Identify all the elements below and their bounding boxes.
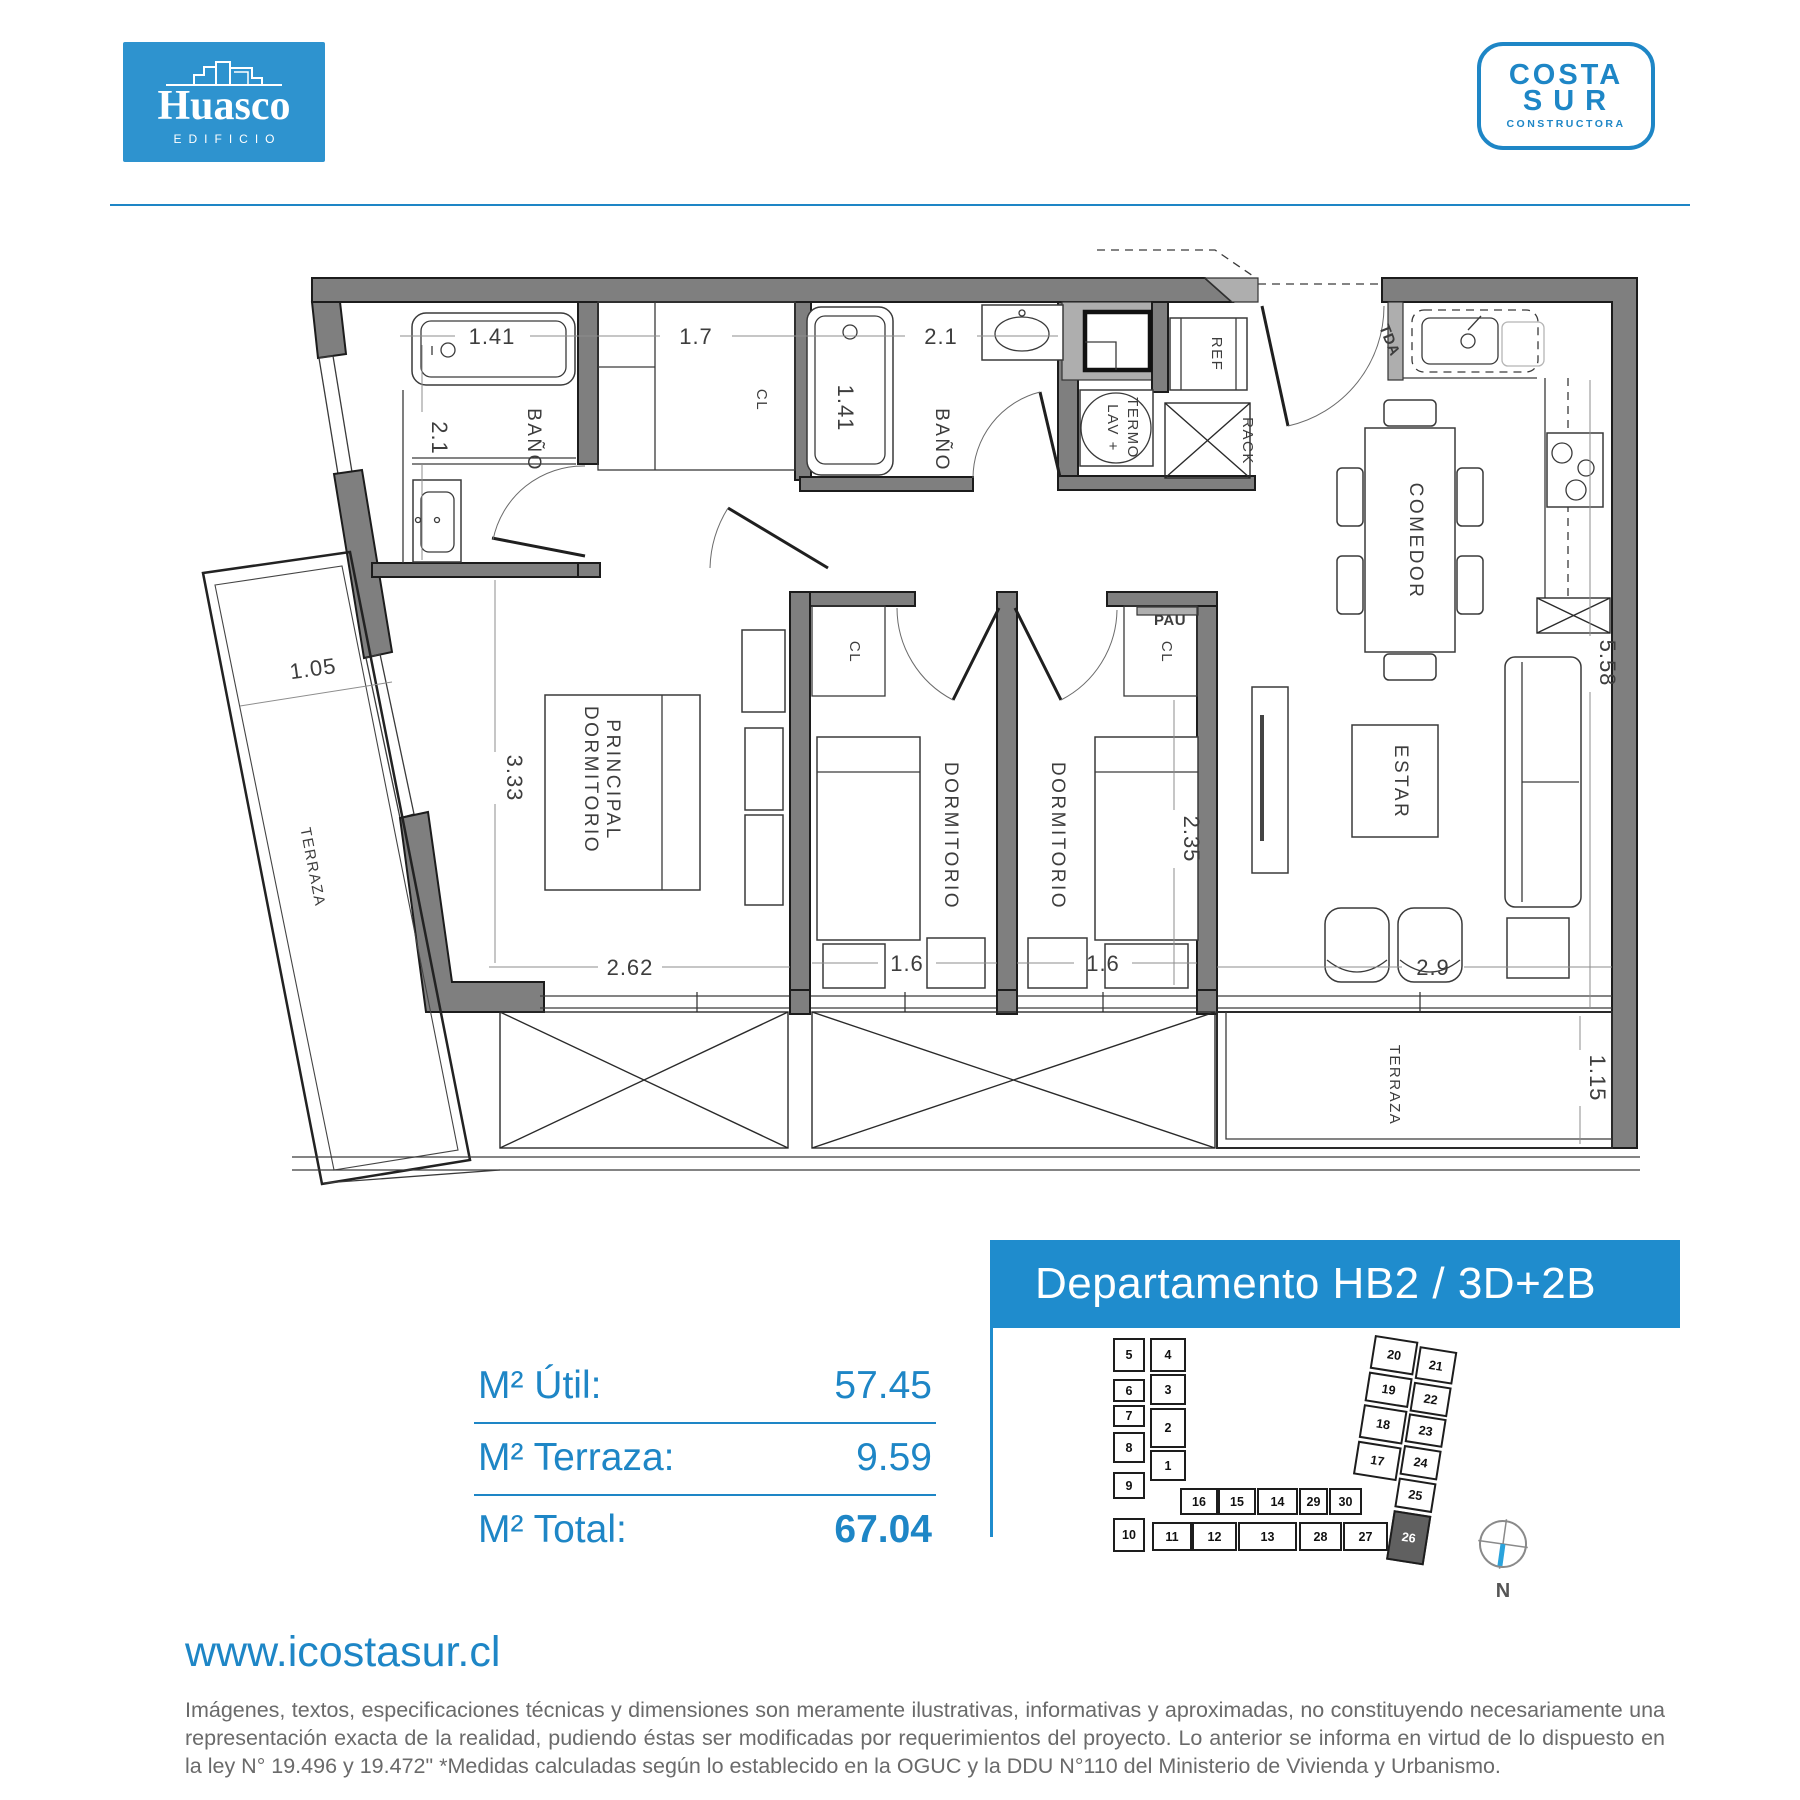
site-unit-11: 11 <box>1152 1522 1192 1551</box>
entry-door: TDA <box>1262 306 1403 426</box>
site-unit-9: 9 <box>1113 1472 1145 1499</box>
room-label-line2: PRINCIPAL <box>602 719 623 840</box>
dim-bed2-w: 1.6 <box>890 951 924 976</box>
area-row-util: M² Útil: 57.45 <box>474 1352 936 1424</box>
site-unit-2: 2 <box>1150 1408 1186 1448</box>
site-boundary-lines <box>292 1157 1640 1183</box>
site-unit-5: 5 <box>1113 1338 1145 1372</box>
terrace-right: TERRAZA 1.15 <box>1217 1012 1612 1148</box>
site-unit-14: 14 <box>1257 1488 1298 1515</box>
rack-label: RACK <box>1239 417 1256 465</box>
floor-plan: BAÑO CL 1.41 BAÑO <box>200 230 1700 1240</box>
cooktop-icon <box>1547 433 1603 507</box>
window-terrace-left-door <box>366 654 414 818</box>
brochure-page: Huasco EDIFICIO COSTA SUR CONSTRUCTORA <box>0 0 1800 1800</box>
dining-area: COMEDOR <box>1337 400 1483 680</box>
lav-label-1: LAV + <box>1104 404 1121 452</box>
closet-label: CL <box>753 389 770 411</box>
dim-terrace-right: 1.15 <box>1585 1055 1610 1102</box>
duct-shaft-icon <box>1085 312 1150 370</box>
single-bed-icon <box>817 737 920 940</box>
site-unit-8: 8 <box>1113 1432 1145 1463</box>
area-value: 57.45 <box>834 1364 932 1408</box>
unit-title-banner: Departamento HB2 / 3D+2B <box>993 1240 1680 1328</box>
side-table-icon <box>1507 918 1569 978</box>
window-band-south <box>540 990 1612 1014</box>
room-label: COMEDOR <box>1405 483 1426 600</box>
costasur-logo: COSTA SUR CONSTRUCTORA <box>1477 42 1655 150</box>
terrace-projections <box>500 1012 1215 1148</box>
site-unit-10: 10 <box>1113 1518 1145 1552</box>
door-leaf <box>953 608 999 700</box>
site-unit-3: 3 <box>1150 1374 1186 1405</box>
vanity-icon <box>982 305 1063 360</box>
area-row-total: M² Total: 67.04 <box>474 1496 936 1566</box>
tv-unit-icon <box>1252 687 1288 873</box>
room-label-line1: DORMITORIO <box>580 706 601 854</box>
dim-master-w: 2.62 <box>607 955 654 980</box>
site-unit-15: 15 <box>1218 1488 1256 1515</box>
room-label: DORMITORIO <box>1047 762 1068 910</box>
compass: N <box>1474 1516 1532 1602</box>
dim-kitchen-h: 5.58 <box>1595 640 1620 687</box>
room-label: BAÑO <box>931 408 953 472</box>
chair-icon <box>1325 908 1389 982</box>
huasco-logo: Huasco EDIFICIO <box>123 42 325 162</box>
site-unit-1: 1 <box>1150 1450 1186 1481</box>
room-label: DORMITORIO <box>940 762 961 910</box>
living-area: ESTAR <box>1252 657 1581 982</box>
site-unit-20: 20 <box>1370 1335 1419 1375</box>
site-unit-12: 12 <box>1192 1522 1237 1551</box>
site-unit-17: 17 <box>1353 1441 1402 1481</box>
dim-tub1: 1.41 <box>469 324 516 349</box>
area-value: 9.59 <box>856 1436 932 1480</box>
dim-closet: 1.7 <box>679 324 713 349</box>
site-unit-22: 22 <box>1409 1382 1451 1418</box>
site-unit-6: 6 <box>1113 1379 1145 1402</box>
area-row-terraza: M² Terraza: 9.59 <box>474 1424 936 1496</box>
site-unit-19: 19 <box>1365 1372 1413 1409</box>
site-unit-25: 25 <box>1394 1478 1436 1514</box>
huasco-logo-subtitle: EDIFICIO <box>166 132 281 146</box>
site-unit-26-highlighted: 26 <box>1386 1510 1431 1565</box>
site-unit-16: 16 <box>1180 1488 1218 1515</box>
room-label: ESTAR <box>1390 745 1411 819</box>
dim-bed3-h: 2.35 <box>1179 816 1204 863</box>
website-link[interactable]: www.icostasur.cl <box>185 1628 500 1677</box>
site-unit-29: 29 <box>1299 1488 1328 1515</box>
lav-label-2: TERMO <box>1124 397 1141 459</box>
dim-living-w: 2.9 <box>1416 955 1450 980</box>
huasco-logo-name: Huasco <box>157 86 290 126</box>
site-unit-7: 7 <box>1113 1405 1145 1427</box>
bedroom-2: CL DORMITORIO <box>812 606 999 988</box>
window-left-upper <box>319 356 352 474</box>
pau-label: PAU <box>1154 612 1186 629</box>
room-label: TERRAZA <box>296 826 328 908</box>
laundry-area: LAV + TERMO <box>1080 312 1153 466</box>
door-leaf <box>1262 306 1288 426</box>
site-plan: 5678910432116151429301112132827 20191817… <box>1090 1332 1490 1577</box>
area-label: M² Terraza: <box>478 1436 675 1480</box>
accent-line <box>990 1240 993 1537</box>
site-unit-21: 21 <box>1415 1346 1458 1385</box>
site-unit-23: 23 <box>1405 1413 1447 1448</box>
closet-label: CL <box>846 641 863 663</box>
site-unit-13: 13 <box>1238 1522 1297 1551</box>
compass-icon <box>1474 1516 1532 1576</box>
header-divider <box>110 204 1690 206</box>
area-label: M² Total: <box>478 1508 627 1552</box>
door-leaf <box>492 538 585 556</box>
door-leaf <box>728 508 828 568</box>
room-label: TERRAZA <box>1386 1045 1403 1126</box>
site-unit-4: 4 <box>1150 1338 1186 1372</box>
costasur-line2: SUR <box>1515 88 1617 115</box>
area-value: 67.04 <box>834 1508 932 1552</box>
area-label: M² Útil: <box>478 1364 601 1408</box>
kitchen-storage: REF RACK <box>1165 318 1256 478</box>
dim-terrace-left: 1.05 <box>288 653 338 684</box>
site-unit-28: 28 <box>1299 1522 1342 1551</box>
dim-tub2: 1.41 <box>833 385 858 432</box>
legal-disclaimer: Imágenes, textos, especificaciones técni… <box>185 1697 1665 1781</box>
costasur-line3: CONSTRUCTORA <box>1506 118 1625 130</box>
dim-master-h: 3.33 <box>502 755 527 802</box>
site-unit-18: 18 <box>1359 1404 1408 1444</box>
door-leaf <box>1015 608 1061 700</box>
ref-label: REF <box>1208 337 1225 372</box>
dim-vanity1: 2.1 <box>427 421 452 455</box>
compass-north-label: N <box>1474 1580 1532 1603</box>
closet-label: CL <box>1158 641 1175 663</box>
dim-bed3-w: 1.6 <box>1086 951 1120 976</box>
room-label: BAÑO <box>523 408 545 472</box>
site-unit-24: 24 <box>1399 1445 1441 1481</box>
bedroom-3: CL PAU DORMITORIO <box>1015 606 1198 988</box>
area-table: M² Útil: 57.45 M² Terraza: 9.59 M² Total… <box>474 1352 936 1566</box>
dim-bath2: 2.1 <box>924 324 958 349</box>
